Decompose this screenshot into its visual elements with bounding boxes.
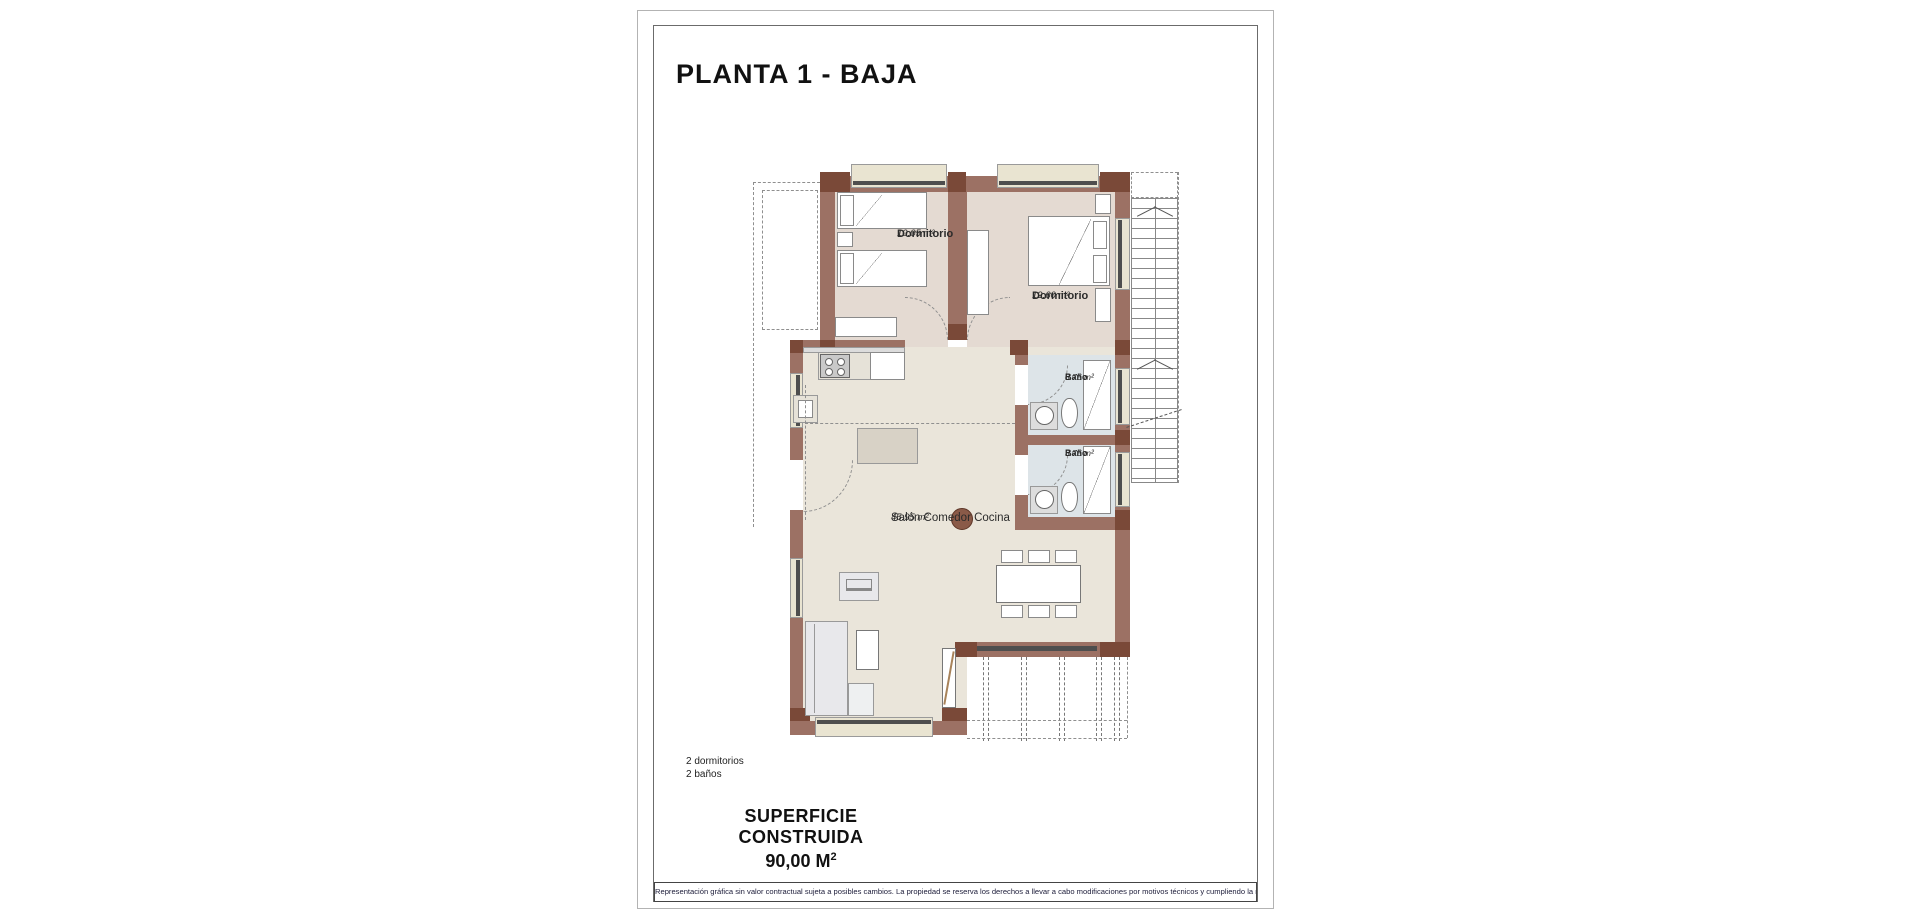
burner-icon <box>837 358 845 366</box>
room-area: 10.05 m² <box>897 228 935 239</box>
stove-icon <box>820 354 850 378</box>
toilet-icon-bath1 <box>1061 398 1078 428</box>
dashed-boundary-top <box>753 182 820 183</box>
page-title: PLANTA 1 - BAJA <box>676 59 918 90</box>
dining-table <box>996 565 1081 603</box>
pillar-right-2 <box>1115 430 1130 445</box>
sofa-chaise <box>848 683 874 716</box>
pillar-right-3 <box>1115 510 1130 530</box>
bath1-opening <box>1015 365 1028 405</box>
dashed-boundary-left <box>753 182 754 527</box>
pillar-hall-left <box>790 340 803 353</box>
pillar-right-1 <box>1115 340 1130 355</box>
door-leaf <box>943 651 954 705</box>
built-surface: SUPERFICIE CONSTRUIDA 90,00 M2 <box>691 806 911 872</box>
window-terrace-glazing <box>977 646 1097 651</box>
kitchen-cabinet <box>870 352 905 380</box>
vanity-bath2 <box>1030 486 1058 514</box>
pillow <box>840 195 854 226</box>
terrace-dash-mid <box>967 720 1127 721</box>
sofa <box>805 621 848 716</box>
dashed-terrace-outline <box>762 190 818 330</box>
pergola-column <box>983 657 989 741</box>
entrance-opening <box>790 460 803 510</box>
bed-fold <box>1059 219 1091 285</box>
kitchen-island <box>857 428 918 464</box>
vanity-bath1 <box>1030 402 1058 430</box>
staircase <box>1131 198 1178 483</box>
built-surface-label: SUPERFICIE CONSTRUIDA <box>691 806 911 848</box>
shower-bath1 <box>1083 360 1111 430</box>
pillar-door-top <box>955 642 977 657</box>
burner-icon <box>825 358 833 366</box>
chair <box>1028 605 1050 618</box>
pillar-bottom-right <box>1100 642 1130 657</box>
window-bedroom2 <box>997 164 1099 188</box>
pergola-column <box>1021 657 1027 741</box>
room-summary: 2 dormitorios 2 baños <box>686 755 744 781</box>
terrace-dash-right <box>1127 657 1128 738</box>
room-area: 45.95 m² <box>891 512 929 523</box>
toilet-icon-bath2 <box>1061 482 1078 512</box>
nightstand <box>1095 194 1111 214</box>
bed-single-2 <box>837 250 927 287</box>
surface-sup: 2 <box>830 851 836 863</box>
bed-fold <box>856 195 882 226</box>
kitchen-zone-dash-v <box>805 385 806 520</box>
stair-direction-arrow <box>1137 205 1173 218</box>
burner-icon <box>825 368 833 376</box>
chair <box>1028 550 1050 563</box>
pergola-column <box>1114 657 1120 741</box>
nightstand <box>1095 288 1111 322</box>
wall-bath-divider <box>1015 435 1115 445</box>
pillar-door-bottom <box>942 708 967 721</box>
pillow <box>840 253 854 284</box>
wall-bedroom1-left <box>820 192 835 340</box>
chair <box>1001 550 1023 563</box>
dresser <box>835 317 897 337</box>
room-area: 12.60 m² <box>1032 290 1070 301</box>
pillar-bath-corner <box>1010 340 1028 355</box>
surface-number: 90,00 M <box>765 851 830 871</box>
bed-double <box>1028 216 1110 286</box>
wardrobe <box>967 230 989 315</box>
pillar-top-mid <box>948 172 966 192</box>
pillow <box>1093 221 1107 249</box>
pergola-column <box>1059 657 1065 741</box>
kitchen-zone-dash-h <box>805 423 1015 424</box>
sofa-cushion-line <box>814 624 815 713</box>
pillar-top-left <box>820 172 850 192</box>
tv-unit <box>839 572 879 601</box>
bed-fold <box>856 253 882 284</box>
dashed-stair-landing <box>1131 172 1178 198</box>
bath2-opening <box>1015 455 1028 495</box>
window-bath2 <box>1115 452 1130 507</box>
washbasin-icon <box>1035 490 1054 509</box>
washbasin-icon <box>1035 406 1054 425</box>
summary-bathrooms: 2 baños <box>686 768 744 781</box>
pillow <box>1093 255 1107 283</box>
coffee-table <box>856 630 879 670</box>
tv-drawer <box>846 579 872 591</box>
window-bedroom2-east <box>1115 218 1130 290</box>
burner-icon <box>837 368 845 376</box>
dashed-stair-edge <box>1178 172 1179 483</box>
terrace-dash-bottom <box>967 738 1127 739</box>
nightstand <box>837 232 853 247</box>
wall-bedroom-divider <box>948 192 967 324</box>
wall-bath-bottom <box>1015 517 1115 530</box>
terrace-door <box>942 648 956 708</box>
stair-direction-arrow <box>1137 358 1173 371</box>
window-living-west <box>790 558 803 618</box>
room-area: 3.75 m² <box>1065 448 1094 458</box>
pillar-top-right <box>1100 172 1130 192</box>
window-living-south <box>815 717 933 737</box>
window-bedroom1 <box>851 164 947 188</box>
legal-disclaimer: Representación gráfica sin valor contrac… <box>654 882 1257 902</box>
pergola-column <box>1096 657 1102 741</box>
chair <box>1055 605 1077 618</box>
chair <box>1001 605 1023 618</box>
pillar-divider-end <box>948 324 967 340</box>
built-surface-value: 90,00 M2 <box>691 851 911 872</box>
summary-bedrooms: 2 dormitorios <box>686 755 744 768</box>
floor-plan: Dormitorio 10.05 m² Dormitorio 12.60 m² … <box>745 160 1195 760</box>
chair <box>1055 550 1077 563</box>
room-area: 3.75 m² <box>1065 372 1094 382</box>
bed-single-1 <box>837 192 927 229</box>
window-bath1 <box>1115 368 1130 425</box>
